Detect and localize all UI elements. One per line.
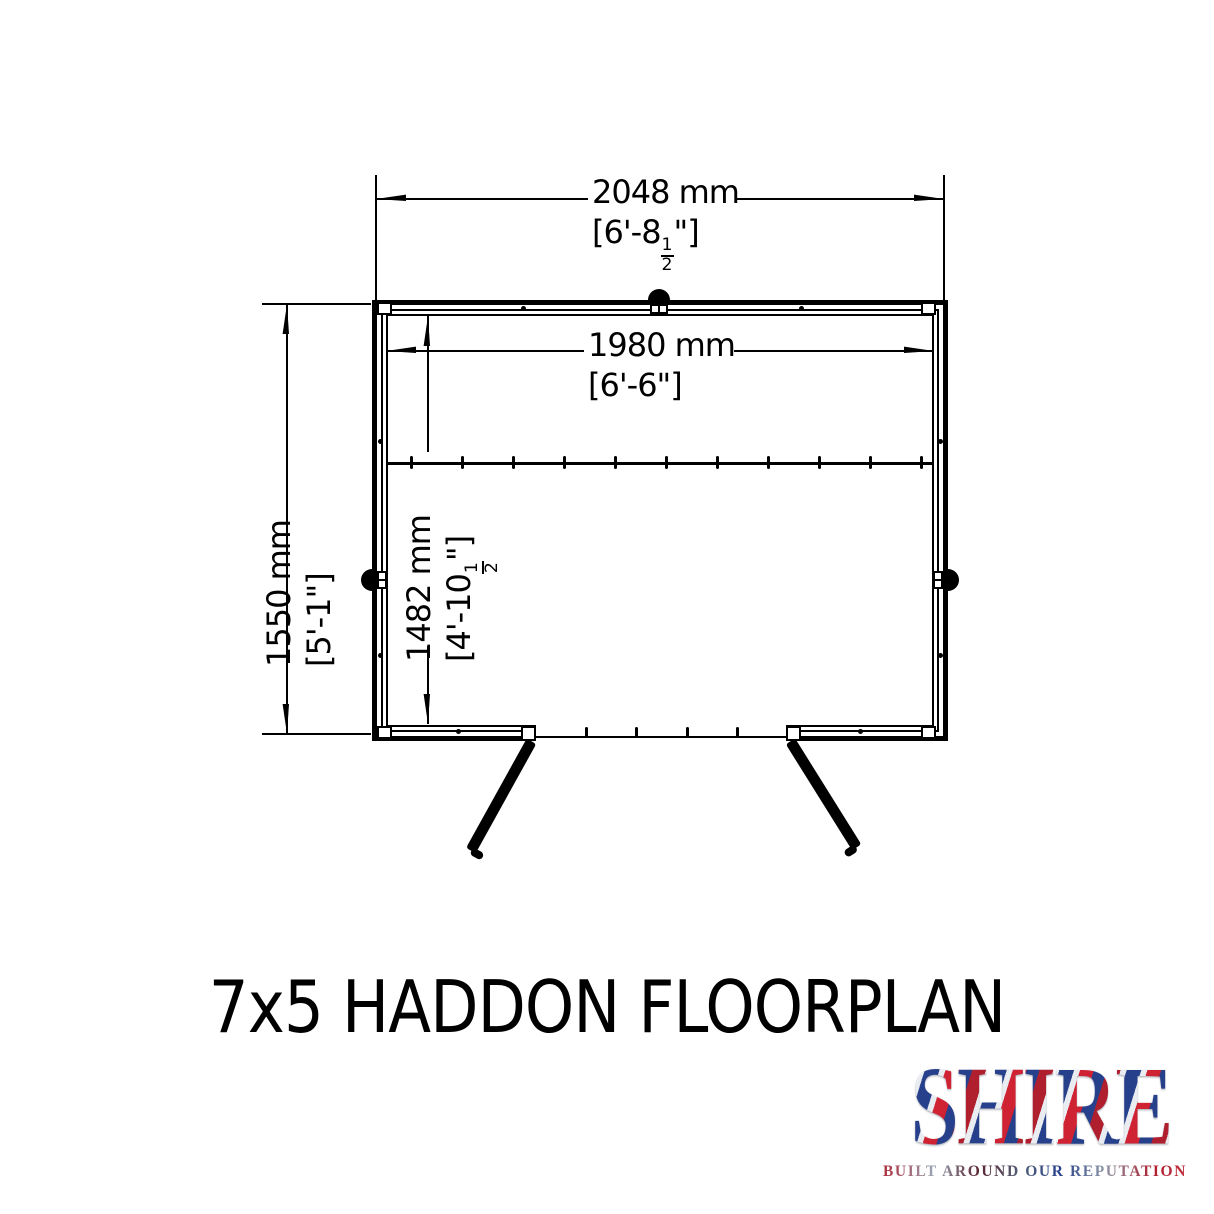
dim-internal-depth-mm: 1482 mm [399,442,439,662]
joint-tick [512,456,515,469]
dim-internal-depth: 1482 mm [4'-1012"] [399,442,483,662]
arrowhead-right-icon [914,194,944,204]
side-marker-right [948,569,959,591]
dim-internal-width: 1980 mm [6'-6"] [588,325,735,405]
joint-tick [920,456,923,469]
fraction: 12 [464,561,501,574]
side-marker-right-divider [933,579,943,581]
joint-tick [665,456,668,469]
joint-tick [614,456,617,469]
page-title: 7x5 HADDON FLOORPLAN [79,971,1135,1043]
apex-marker-joint-divider [658,304,660,314]
corner-block-bottom-right [921,726,936,739]
fixing-dot [521,306,526,311]
ext-line-depth-bottom [262,733,371,735]
arrowhead-down-icon [282,704,292,734]
corner-block-top-right [921,302,936,315]
side-marker-left-divider [377,579,387,581]
brand-logo-wordmark: SHIRE [911,1052,1172,1162]
brand-logo: SHIRE BUILT AROUND OUR REPUTATION [878,1056,1192,1181]
corner-block-bottom-left [377,726,392,739]
door-leaf-right [786,738,862,850]
dim-internal-depth-imperial: [4'-1012"] [439,442,502,662]
dim-overall-depth-mm: 1550 mm [259,437,299,667]
fixing-dot [799,306,804,311]
arrowhead-left-icon [376,194,406,204]
dim-overall-width-imperial: [6'-812"] [592,212,739,275]
fixing-dot [938,653,943,658]
ext-line-width-left [375,175,377,300]
fixing-dot [938,439,943,444]
dim-internal-width-imperial: [6'-6"] [588,365,735,405]
threshold-tick [585,727,588,737]
fixing-dot [456,729,461,734]
floorplan-page: 2048 mm [6'-812"] 1980 mm [6'-6"] 1550 m… [0,0,1214,1214]
joint-tick [716,456,719,469]
dim-line-2048-b [737,198,944,200]
joint-tick [869,456,872,469]
threshold-line [536,736,786,738]
dim-overall-width-mm: 2048 mm [592,172,739,212]
side-marker-left [361,569,372,591]
door-opening [536,716,786,746]
corner-block-top-left [377,302,392,315]
arrowhead-up-icon [282,304,292,334]
threshold-tick [736,727,739,737]
fixing-dot [858,729,863,734]
joint-tick [818,456,821,469]
joint-tick [767,456,770,469]
dim-internal-width-mm: 1980 mm [588,325,735,365]
ext-line-depth-top [262,303,371,305]
door-leaf-left [466,739,536,854]
fraction: 12 [661,237,674,274]
dim-overall-depth-imperial: [5'-1"] [299,437,339,667]
dim-overall-depth: 1550 mm [5'-1"] [259,437,343,667]
dim-overall-width: 2048 mm [6'-812"] [592,172,739,275]
apex-marker [648,289,670,300]
threshold-tick [635,727,638,737]
ext-line-width-right [943,175,945,300]
fixing-dot [378,653,383,658]
threshold-tick [686,727,689,737]
joint-tick [563,456,566,469]
dim-line-2048-a [376,198,588,200]
fixing-dot [378,439,383,444]
